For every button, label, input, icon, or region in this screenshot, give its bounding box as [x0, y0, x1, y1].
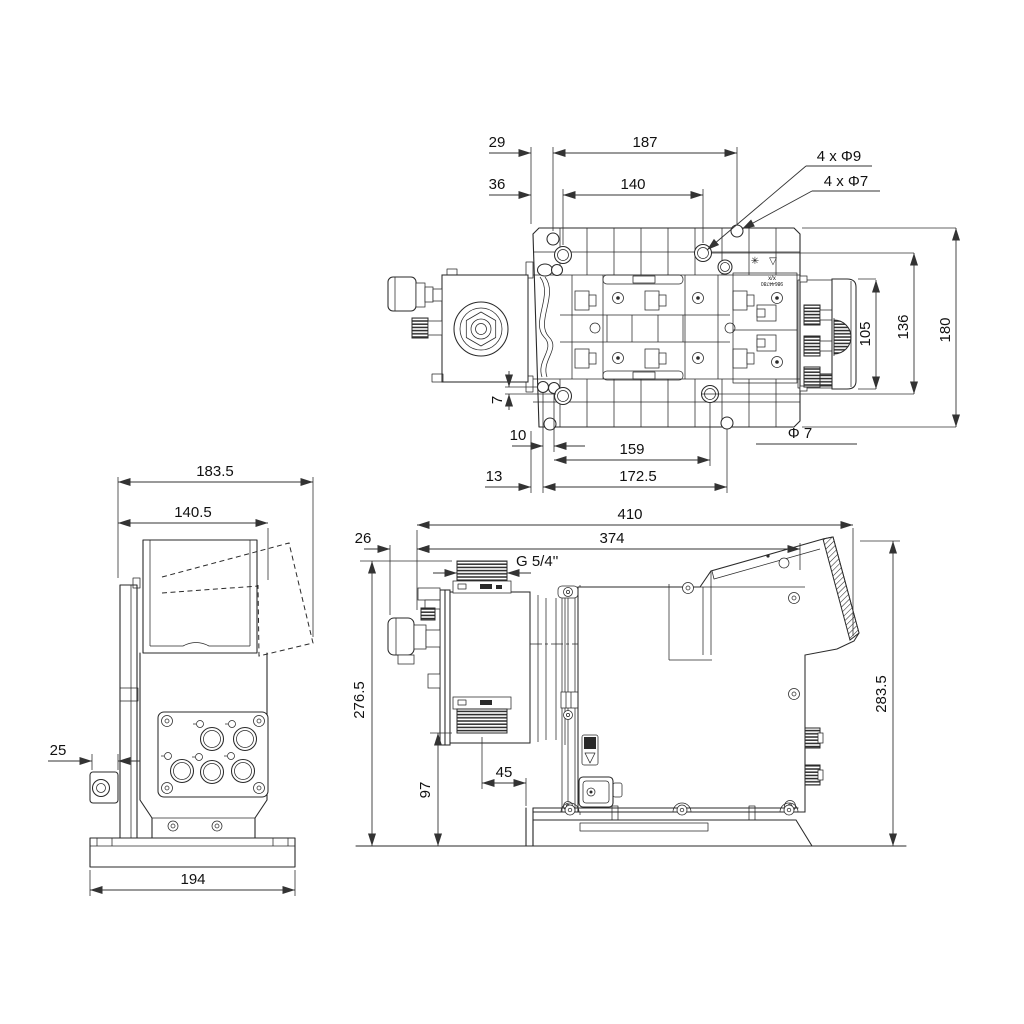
dim-159: 159 [619, 441, 644, 458]
dim-29: 29 [489, 134, 506, 151]
dim-194: 194 [180, 871, 205, 888]
dim-140-5: 140.5 [174, 504, 212, 521]
dim-45: 45 [496, 764, 513, 781]
side-view-dimensions: 183.5 140.5 25 194 [48, 463, 313, 896]
warning-icon: ▽ [769, 256, 777, 267]
top-cover-side [143, 540, 257, 653]
note-4xphi7: 4 x Φ7 [824, 173, 869, 190]
pump-dimensional-drawing: x/x 98644780 ✳ ▽ [0, 0, 1024, 1024]
valve-port-top [454, 302, 508, 356]
note-thread: G 5/4'' [516, 553, 559, 570]
dim-283-5: 283.5 [873, 675, 890, 713]
dim-172-5: 172.5 [619, 468, 657, 485]
connector-plate [158, 712, 268, 797]
base-plate-side [90, 838, 295, 867]
dosing-head [388, 561, 565, 745]
clamp-row-lower [575, 349, 754, 368]
dim-410: 410 [617, 506, 642, 523]
dim-25: 25 [50, 742, 67, 759]
mounting-holes [538, 225, 744, 430]
dim-187: 187 [632, 134, 657, 151]
panel-dial [779, 558, 789, 568]
dim-140: 140 [620, 176, 645, 193]
id-plate-code-label: 98644780 [761, 280, 783, 286]
suction-valve [453, 697, 511, 733]
dim-7: 7 [489, 396, 506, 404]
dim-13: 13 [486, 468, 503, 485]
dim-276-5: 276.5 [351, 681, 368, 719]
dim-183-5: 183.5 [196, 463, 234, 480]
front-view: 410 374 26 G 5/4'' 276.5 97 45 283.5 [351, 506, 906, 846]
cable-gland-top [388, 277, 442, 311]
gear-icon: ✳ [751, 256, 759, 267]
knurled-connector-top [412, 318, 442, 338]
dim-10: 10 [510, 427, 527, 444]
dim-136: 136 [895, 314, 912, 339]
drawing-canvas: x/x 98644780 ✳ ▽ [0, 0, 1024, 1024]
side-knobs [805, 728, 823, 785]
open-panel-dashed [162, 543, 313, 656]
dim-36: 36 [489, 176, 506, 193]
note-phi7: Φ 7 [788, 425, 812, 442]
dim-180: 180 [937, 317, 954, 342]
rear-panel [120, 578, 140, 838]
dim-26: 26 [355, 530, 372, 547]
mounting-plate: x/x 98644780 ✳ ▽ [526, 225, 800, 430]
wall-bracket [90, 772, 118, 803]
control-housing [578, 537, 859, 812]
discharge-valve [453, 561, 511, 593]
cable-gland-front [388, 618, 440, 664]
side-view: 183.5 140.5 25 194 [48, 463, 313, 896]
dim-105: 105 [857, 321, 874, 346]
top-view: x/x 98644780 ✳ ▽ [388, 134, 956, 493]
clamp-row-upper [575, 291, 754, 310]
top-view-dimensions: 29 187 36 140 4 x Φ9 4 x Φ7 105 136 180 … [485, 134, 956, 493]
control-unit-top [798, 276, 856, 391]
pump-head-top [388, 269, 528, 382]
dim-374: 374 [599, 530, 624, 547]
dim-97: 97 [417, 782, 434, 799]
note-4xphi9: 4 x Φ9 [817, 148, 862, 165]
